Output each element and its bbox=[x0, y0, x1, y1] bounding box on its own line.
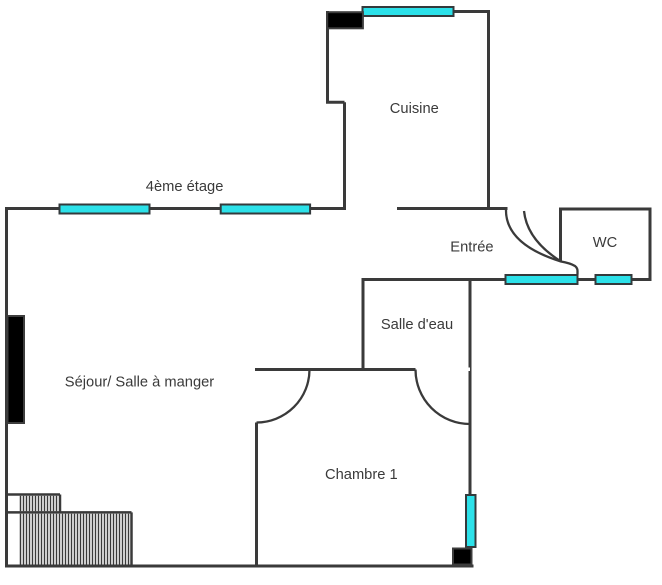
svg-text:4ème étage: 4ème étage bbox=[146, 179, 224, 195]
svg-text:Cuisine: Cuisine bbox=[390, 101, 439, 117]
svg-text:WC: WC bbox=[593, 235, 618, 251]
svg-text:Entrée: Entrée bbox=[450, 239, 493, 255]
svg-text:Salle d'eau: Salle d'eau bbox=[381, 317, 453, 333]
svg-text:Chambre 1: Chambre 1 bbox=[325, 467, 398, 483]
svg-text:Séjour/ Salle à manger: Séjour/ Salle à manger bbox=[65, 375, 215, 391]
